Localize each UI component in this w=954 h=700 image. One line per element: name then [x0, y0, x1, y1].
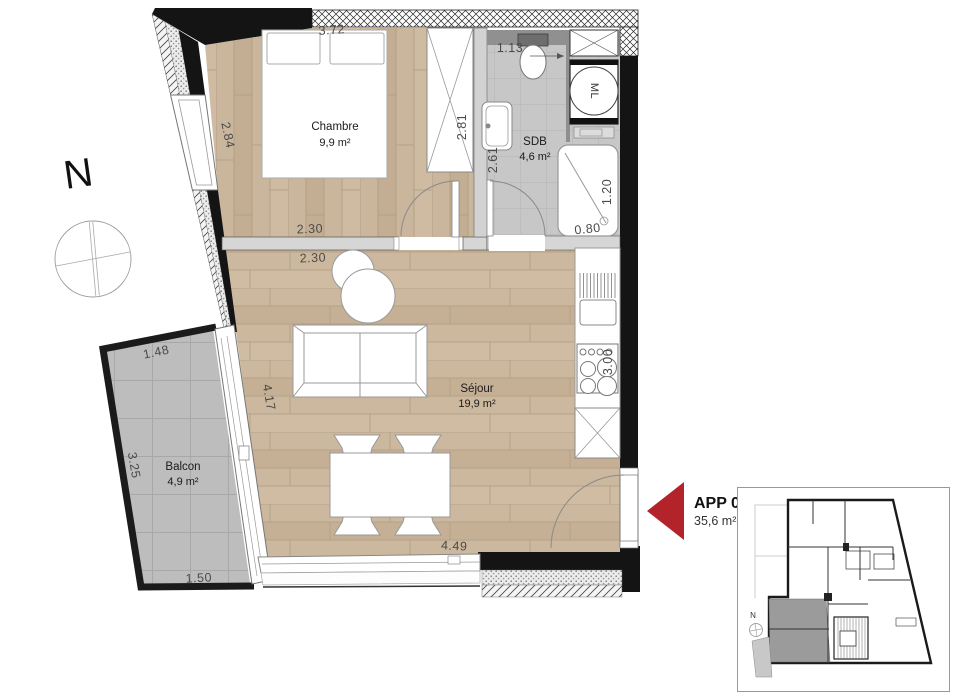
- dim-wardrobe: 2.81: [455, 114, 469, 140]
- window-handle: [239, 446, 249, 460]
- dim-sdb-top: 1.13: [497, 41, 523, 55]
- entrance-door-frame-bottom: [620, 541, 638, 548]
- floor-plan-page: ML: [0, 0, 954, 700]
- armchair-seat: [341, 269, 395, 323]
- floor-plan-canvas: ML: [0, 0, 954, 700]
- wall-right-black: [620, 56, 638, 470]
- room-label-sdb: SDB: [523, 136, 547, 148]
- dim-partition-top: 2.30: [296, 222, 323, 237]
- sdb-door-leaf: [487, 180, 493, 236]
- partition-wall-left: [222, 237, 398, 250]
- inset-north-letter: N: [750, 611, 756, 620]
- inset-wall-block-b: [824, 593, 832, 601]
- chambre-furniture: [262, 28, 473, 178]
- sdb-door-opening: [489, 235, 545, 251]
- location-inset: N: [738, 488, 950, 692]
- sofa: [293, 325, 427, 397]
- room-area-balcon: 4,9 m²: [167, 476, 199, 488]
- room-label-balcon: Balcon: [165, 461, 200, 473]
- inset-apartment-highlight: [769, 599, 830, 662]
- washing-machine: ML: [570, 60, 618, 124]
- room-area-sdb: 4,6 m²: [519, 151, 551, 163]
- wall-bottom-stipple: [482, 570, 622, 585]
- pillow-right: [330, 33, 384, 64]
- room-area-chambre: 9,9 m²: [319, 137, 351, 149]
- dim-sdb-left: 2.61: [486, 147, 500, 173]
- dim-bed-wall: 3.72: [318, 22, 345, 38]
- wardrobe: [427, 28, 473, 172]
- north-compass: N: [55, 150, 131, 297]
- callout-area: 35,6 m²: [694, 514, 736, 528]
- compass-cross: [56, 222, 130, 296]
- washbasin-faucet: [486, 124, 491, 129]
- kitchen-cabinet: [575, 408, 620, 458]
- inset-stairwell: [834, 617, 868, 659]
- dim-balcony-bottom: 1.50: [185, 570, 212, 585]
- dim-partition-bottom: 2.30: [299, 251, 326, 266]
- washing-machine-label: ML: [588, 83, 600, 99]
- entrance-door-frame: [620, 470, 638, 546]
- partition-cap-a: [394, 237, 399, 250]
- callout-arrow: [647, 482, 684, 540]
- wall-right-hatch-block: [620, 27, 638, 56]
- dim-kitchen: 3.00: [601, 349, 615, 375]
- room-area-sejour: 19,9 m²: [458, 398, 496, 410]
- toilet-bowl: [520, 45, 546, 79]
- room-label-chambre: Chambre: [311, 121, 358, 133]
- wall-bottom-black: [478, 552, 640, 570]
- room-label-sejour: Séjour: [460, 383, 493, 395]
- inset-wall-block-a: [843, 543, 849, 551]
- dim-shower-length: 1.20: [600, 179, 614, 205]
- wall-bottom-hatch: [482, 585, 622, 597]
- dim-shower-width: 0.80: [574, 221, 602, 238]
- partition-wall-right: [463, 237, 487, 250]
- window-center-mark: [448, 556, 460, 564]
- apartment-callout: APP 06 35,6 m²: [647, 482, 749, 540]
- bottom-edge-line: [263, 586, 480, 587]
- wall-top-hatch: [312, 10, 638, 27]
- dining-table: [330, 453, 450, 517]
- north-letter: N: [61, 150, 96, 198]
- dim-sejour-bottom: 4.49: [441, 538, 468, 553]
- vent-shaft: [570, 30, 618, 56]
- pillow-left: [267, 33, 320, 64]
- sejour-bottom-sill: [261, 571, 480, 585]
- entrance-door-frame-top: [620, 468, 638, 475]
- chambre-door-leaf: [452, 181, 459, 237]
